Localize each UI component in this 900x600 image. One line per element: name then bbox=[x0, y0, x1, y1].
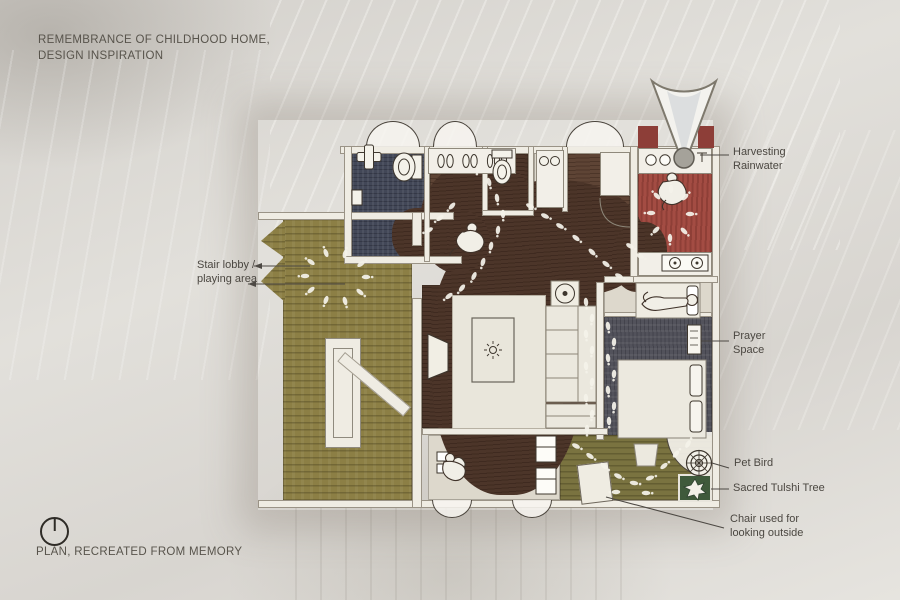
refrigerator bbox=[600, 152, 630, 196]
wall bbox=[258, 500, 720, 508]
annotation-stair-lobby: Stair lobby / playing area bbox=[197, 259, 273, 287]
outside-chair bbox=[577, 461, 614, 505]
door-leaf bbox=[452, 500, 472, 518]
lobby-edge-scallop bbox=[261, 220, 285, 258]
annotation-harvesting-rainwater: Harvesting Rainwater bbox=[733, 146, 813, 174]
door-leaf bbox=[366, 121, 393, 147]
rain-streaks-left bbox=[0, 50, 270, 380]
wall bbox=[596, 282, 604, 440]
wall bbox=[712, 146, 720, 508]
title-line-2: DESIGN INSPIRATION bbox=[38, 49, 270, 65]
wall bbox=[344, 146, 352, 258]
door-leaf bbox=[455, 121, 477, 147]
title-line-1: REMEMBRANCE OF CHILDHOOD HOME, bbox=[38, 33, 270, 49]
door-leaf bbox=[595, 121, 624, 147]
wall bbox=[630, 146, 638, 282]
living-rug bbox=[452, 295, 546, 429]
clock-hand bbox=[53, 519, 56, 531]
kitchen-wall-stub bbox=[638, 126, 658, 148]
clock-icon bbox=[40, 517, 69, 546]
poster-canvas: { "title": {"line1": "REMEMBRANCE OF CHI… bbox=[0, 0, 900, 600]
door-leaf bbox=[393, 121, 420, 147]
annotation-pet-bird: Pet Bird bbox=[734, 457, 804, 471]
door-leaf bbox=[512, 500, 532, 518]
kitchen-counter-stove bbox=[638, 252, 712, 276]
wall bbox=[344, 256, 462, 264]
wall bbox=[528, 146, 534, 216]
kitchen-wall-stub bbox=[698, 126, 714, 148]
wall bbox=[604, 276, 634, 283]
wall bbox=[412, 298, 422, 508]
door-leaf bbox=[433, 121, 455, 147]
kitchen-counter-top bbox=[638, 148, 712, 174]
annotation-sacred-tulshi-tree: Sacred Tulshi Tree bbox=[733, 482, 853, 496]
annotation-prayer-space: Prayer Space bbox=[733, 330, 793, 358]
room-bedroom bbox=[604, 316, 712, 440]
wall bbox=[482, 210, 534, 216]
door-leaf bbox=[432, 500, 452, 518]
door-leaf bbox=[566, 121, 595, 147]
wall bbox=[604, 312, 712, 317]
wall bbox=[630, 276, 718, 283]
washing-area bbox=[536, 150, 564, 208]
tulsi-planter bbox=[678, 474, 712, 502]
footer-caption: PLAN, RECREATED FROM MEMORY bbox=[36, 546, 242, 558]
door-leaf bbox=[532, 500, 552, 518]
poster-title: REMEMBRANCE OF CHILDHOOD HOME, DESIGN IN… bbox=[38, 33, 270, 64]
annotation-chair-outside: Chair used for looking outside bbox=[730, 513, 825, 541]
smudge-top-left bbox=[0, 0, 280, 170]
footwear-shelf bbox=[428, 148, 516, 174]
wall bbox=[422, 428, 608, 435]
wall bbox=[412, 212, 422, 246]
